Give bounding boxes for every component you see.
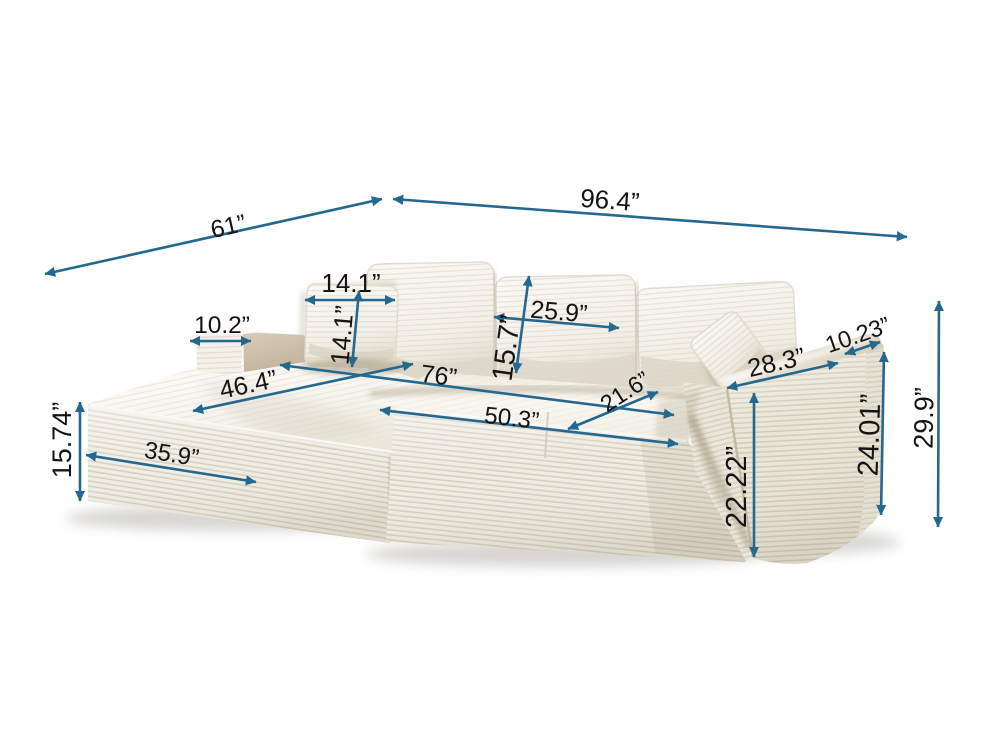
svg-text:14.1”: 14.1”	[324, 304, 359, 366]
svg-text:10.2”: 10.2”	[194, 312, 250, 339]
svg-text:24.01”: 24.01”	[853, 393, 888, 476]
svg-text:15.74”: 15.74”	[47, 402, 77, 479]
svg-text:29.9”: 29.9”	[908, 387, 939, 449]
svg-text:25.9”: 25.9”	[529, 296, 588, 329]
svg-text:76”: 76”	[419, 360, 458, 392]
svg-text:22.22”: 22.22”	[721, 446, 753, 528]
svg-text:96.4”: 96.4”	[579, 183, 640, 217]
svg-text:14.1”: 14.1”	[321, 268, 380, 298]
